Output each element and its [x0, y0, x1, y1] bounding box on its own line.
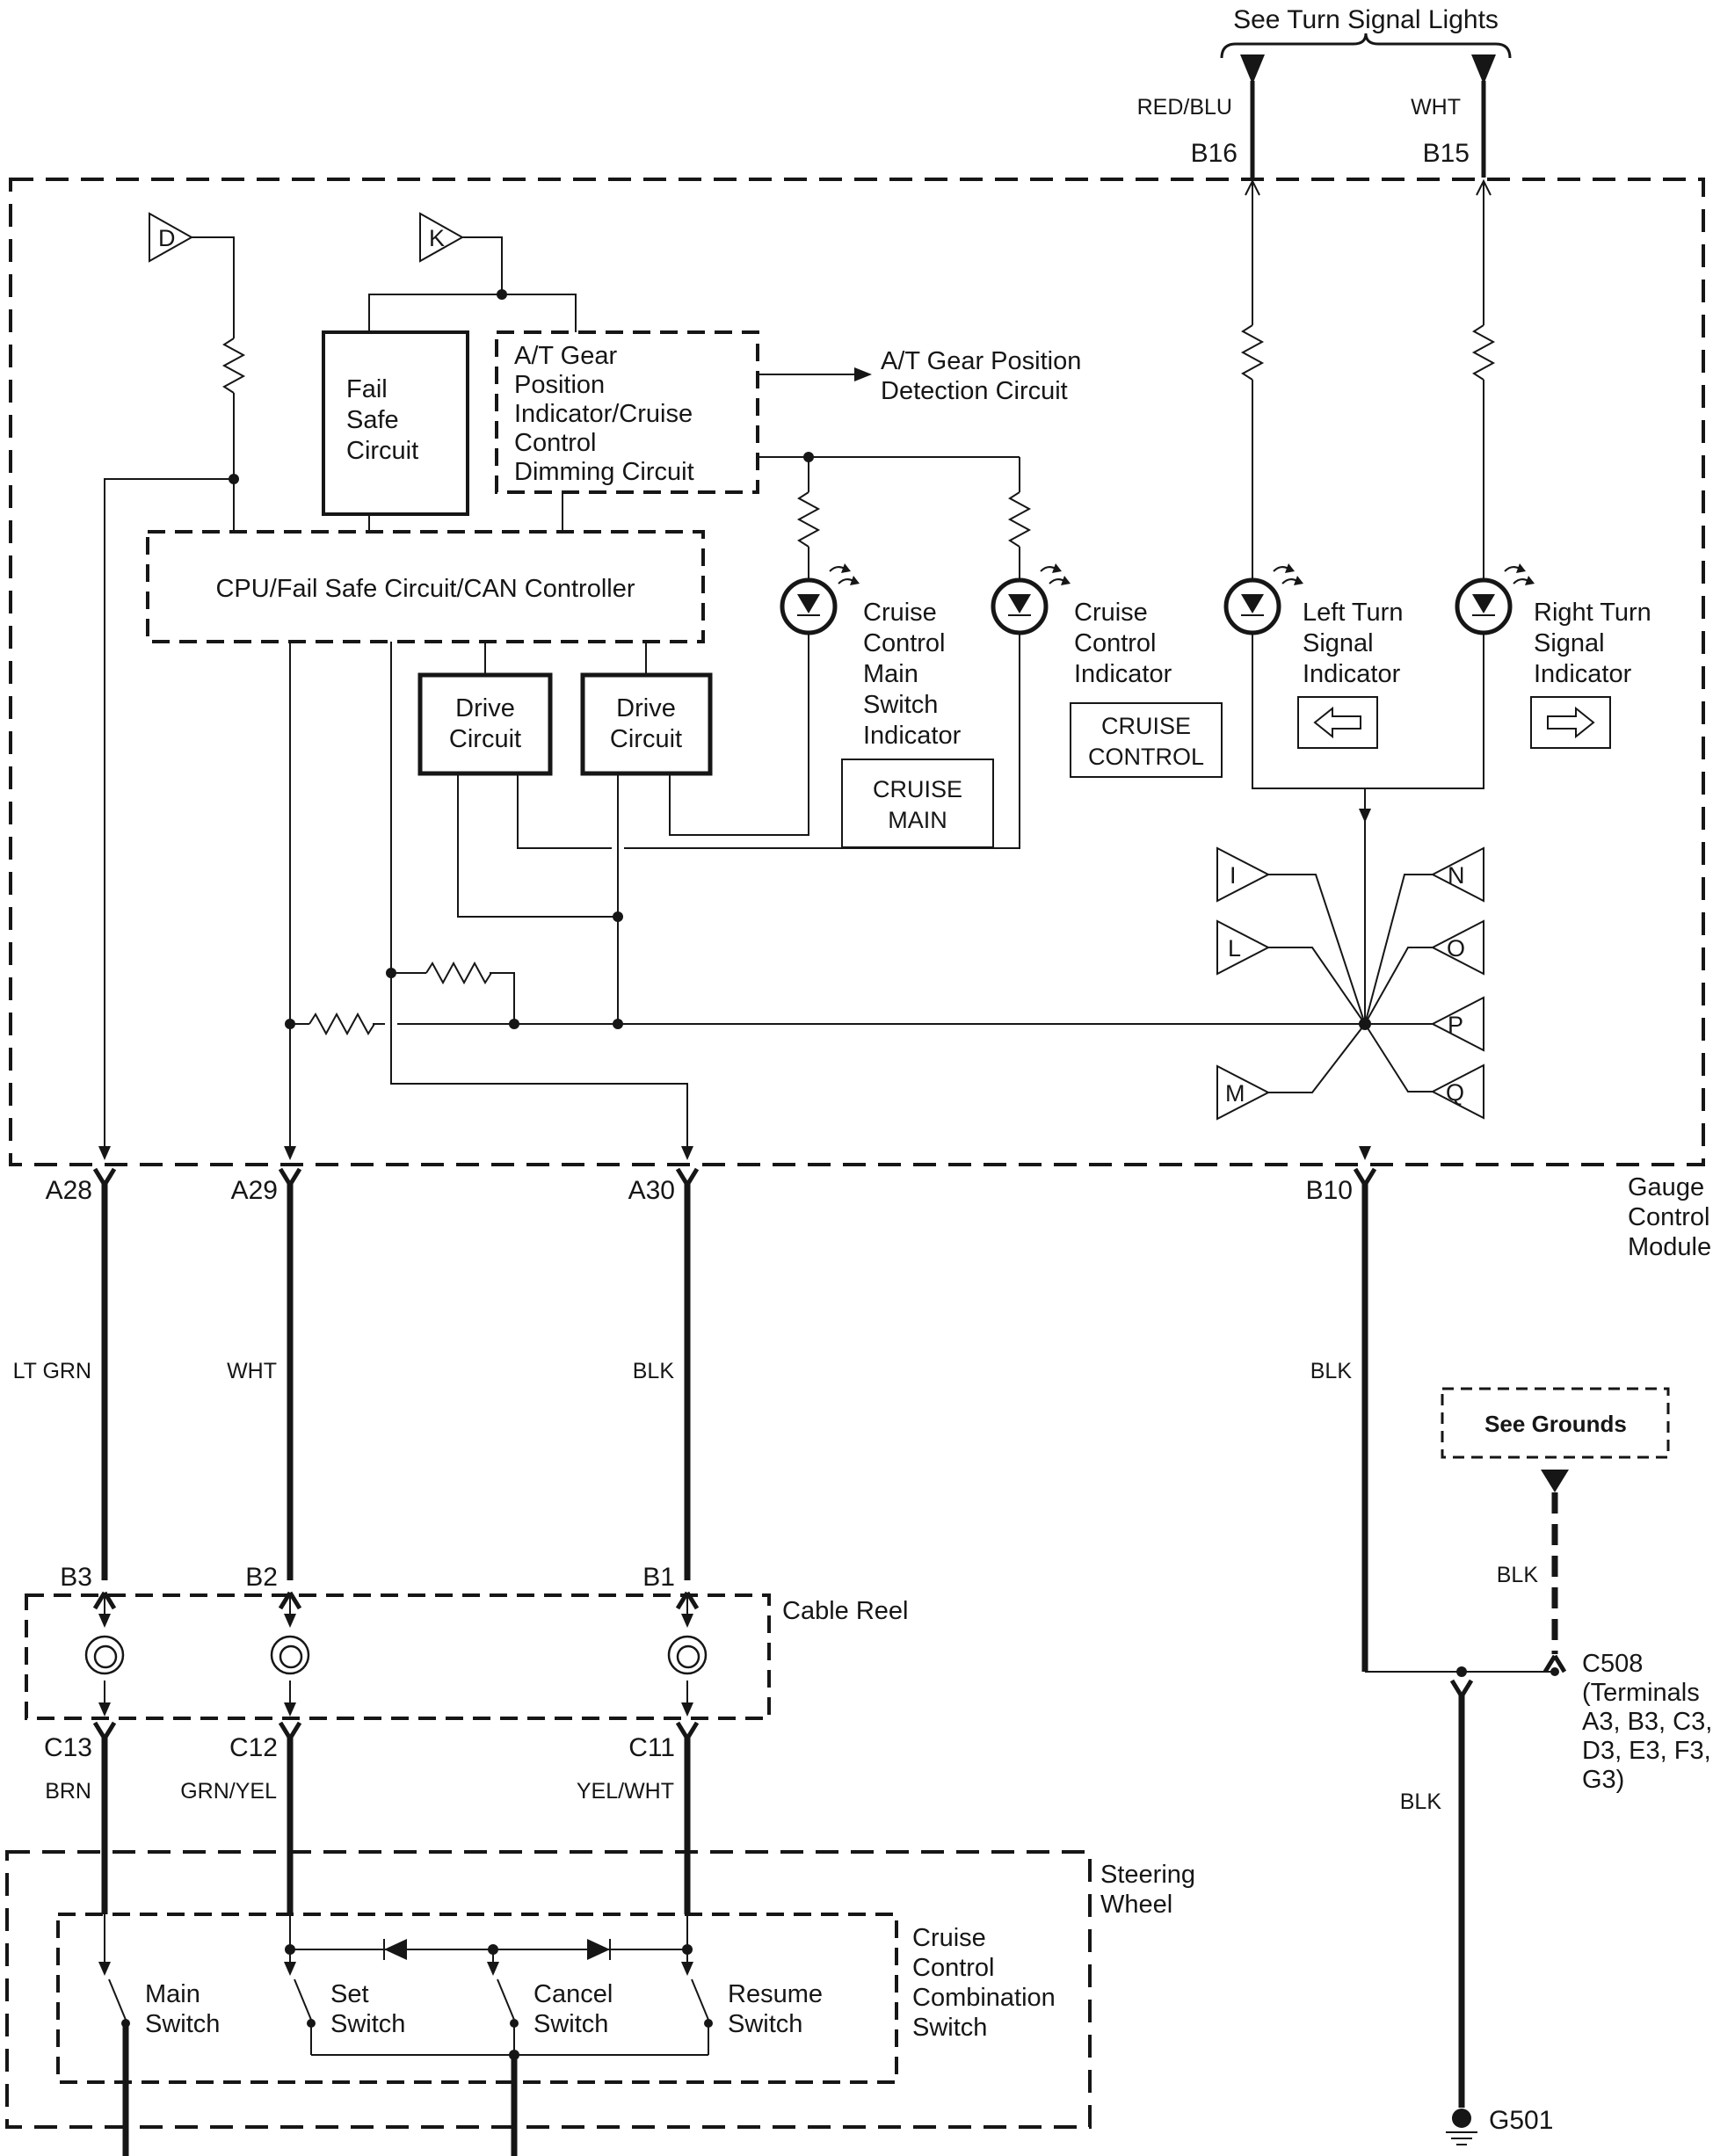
ground-connector-icon	[1541, 1470, 1569, 1492]
cruise-control-indicator: Cruise Control Indicator CRUISE CONTROL	[993, 563, 1222, 777]
combo-line3: Combination	[912, 1984, 1056, 2012]
column-wires: BRN GRN/YEL YEL/WHT	[45, 1735, 687, 1914]
cruise-main-line2: Control	[863, 629, 946, 657]
cable-reel-coil-3	[669, 1595, 706, 1717]
combo-line4: Switch	[912, 2014, 987, 2042]
drive2-line1: Drive	[616, 694, 676, 722]
terminal-B10-label: B10	[1306, 1176, 1353, 1205]
resume-switch-line2: Switch	[728, 2010, 802, 2038]
right-arrow-icon	[1548, 708, 1593, 737]
c12-wire-color: GRN/YEL	[180, 1779, 277, 1804]
cable-reel-label: Cable Reel	[782, 1597, 908, 1625]
turn-return-wires	[1252, 633, 1484, 1024]
left-arrow-badge-box	[1298, 697, 1377, 748]
connector-K: K	[420, 214, 462, 261]
cruise-control-line3: Indicator	[1074, 660, 1172, 688]
left-turn-line1: Left Turn	[1303, 599, 1403, 627]
left-turn-line2: Signal	[1303, 629, 1374, 657]
wiring-diagram-page: See Turn Signal Lights RED/BLU WHT B16 B…	[0, 0, 1713, 2156]
detection-line2: Detection Circuit	[881, 377, 1068, 405]
led-icon	[993, 563, 1071, 633]
b15-wire-color: WHT	[1411, 95, 1461, 120]
a30-wire-color: BLK	[633, 1359, 675, 1383]
a29-wire-color: WHT	[227, 1359, 277, 1383]
b16-wire-color: RED/BLU	[1137, 95, 1232, 120]
c508-line4: D3, E3, F3,	[1582, 1737, 1711, 1765]
connector-I-label: I	[1230, 862, 1237, 889]
cruise-control-badge2: CONTROL	[1088, 744, 1204, 770]
connector-O-label: O	[1447, 935, 1465, 962]
g501-wire-color: BLK	[1400, 1789, 1442, 1814]
junction-dot	[1456, 1666, 1467, 1677]
terminal-B2-label: B2	[245, 1563, 278, 1592]
connector-M-label: M	[1225, 1080, 1245, 1107]
see-grounds-label: See Grounds	[1484, 1411, 1627, 1437]
cancel-switch-line2: Switch	[533, 2010, 608, 2038]
wiring-diagram: See Turn Signal Lights RED/BLU WHT B16 B…	[0, 0, 1713, 2156]
c508-line2: (Terminals	[1582, 1679, 1700, 1707]
at-gear-line2: Position	[514, 371, 605, 399]
led-icon	[782, 563, 860, 633]
c508-line1: C508	[1582, 1650, 1643, 1678]
connector-D: D	[149, 214, 192, 261]
set-switch-line1: Set	[330, 1980, 369, 2008]
connector-Q-label: Q	[1446, 1079, 1464, 1106]
c11-wire-color: YEL/WHT	[577, 1779, 674, 1804]
cable-reel: B3 B2 B1 Cable Reel C13 C12 C11	[26, 1563, 908, 1762]
left-turn-line3: Indicator	[1303, 660, 1401, 688]
turn-signal-feed: See Turn Signal Lights RED/BLU WHT B16 B…	[1137, 5, 1510, 195]
fail-safe-line3: Circuit	[346, 437, 418, 465]
right-turn-line1: Right Turn	[1534, 599, 1651, 627]
diode-right-icon	[587, 1939, 610, 1960]
cable-reel-coil-1	[86, 1595, 123, 1717]
at-gear-line5: Dimming Circuit	[514, 458, 694, 486]
cruise-main-badge2: MAIN	[888, 807, 947, 833]
cruise-control-line2: Control	[1074, 629, 1157, 657]
drive-circuit-2-block: Drive Circuit	[583, 642, 710, 773]
cruise-main-badge-box	[842, 759, 993, 847]
at-gear-line1: A/T Gear	[514, 342, 617, 370]
cruise-control-line1: Cruise	[1074, 599, 1148, 627]
steering-wheel-line1: Steering	[1100, 1861, 1195, 1889]
cruise-main-line5: Indicator	[863, 722, 962, 750]
at-gear-line4: Control	[514, 429, 597, 457]
module-name-line2: Control	[1628, 1203, 1710, 1231]
at-gear-line3: Indicator/Cruise	[514, 400, 693, 428]
b15-terminal-label: B15	[1423, 139, 1470, 168]
drive2-line2: Circuit	[610, 725, 682, 753]
cancel-switch-line1: Cancel	[533, 1980, 613, 2008]
drive1-line2: Circuit	[449, 725, 521, 753]
connector-L: L	[1217, 921, 1365, 1024]
left-arrow-icon	[1315, 708, 1361, 737]
set-switch-line2: Switch	[330, 2010, 405, 2038]
c13-wire-color: BRN	[45, 1779, 91, 1804]
fail-safe-circuit-block: Fail Safe Circuit	[323, 332, 468, 532]
detection-circuit-note: A/T Gear Position Detection Circuit	[758, 347, 1081, 405]
steering-wheel-line2: Wheel	[1100, 1891, 1172, 1919]
connector-P-label: P	[1448, 1012, 1463, 1038]
combo-line2: Control	[912, 1954, 995, 1982]
switch-lever	[294, 1979, 311, 2020]
a28-wire-color: LT GRN	[13, 1359, 91, 1383]
cruise-control-badge1: CRUISE	[1101, 713, 1191, 739]
connector-N-label: N	[1448, 862, 1465, 889]
junction-dot	[1550, 1667, 1559, 1676]
resume-switch-line1: Resume	[728, 1980, 823, 2008]
fail-safe-line2: Safe	[346, 406, 399, 434]
switch-lever	[692, 1979, 708, 2020]
main-switch: Main Switch	[98, 1914, 220, 2156]
connector-Q: Q	[1365, 1024, 1484, 1118]
internal-wires	[285, 633, 1371, 1148]
set-switch: Set Switch	[284, 1914, 405, 2055]
at-gear-dimming-block: A/T Gear Position Indicator/Cruise Contr…	[497, 332, 758, 532]
cruise-main-indicator: Cruise Control Main Switch Indicator CRU…	[782, 563, 993, 847]
terminal-A29-label: A29	[231, 1176, 278, 1205]
connector-P: P	[1365, 998, 1484, 1050]
gauge-control-module-name: Gauge Control Module	[1628, 1173, 1711, 1261]
cable-reel-box	[26, 1595, 769, 1718]
detection-line1: A/T Gear Position	[881, 347, 1081, 375]
right-turn-line2: Signal	[1534, 629, 1605, 657]
brace	[1222, 33, 1510, 58]
terminal-A28-label: A28	[46, 1176, 92, 1205]
fail-safe-line1: Fail	[346, 375, 388, 403]
terminal-B3-label: B3	[60, 1563, 92, 1592]
cpu-label: CPU/Fail Safe Circuit/CAN Controller	[215, 575, 635, 603]
right-arrow-badge-box	[1531, 697, 1610, 748]
ground-wire-color: BLK	[1497, 1563, 1539, 1587]
right-turn-line3: Indicator	[1534, 660, 1632, 688]
d-wire	[105, 237, 243, 1148]
ground-symbol-icon	[1446, 2109, 1477, 2145]
cpu-block: CPU/Fail Safe Circuit/CAN Controller	[148, 532, 703, 642]
terminal-A30-label: A30	[628, 1176, 675, 1205]
cruise-main-line1: Cruise	[863, 599, 937, 627]
drive-circuit-1-block: Drive Circuit	[420, 642, 550, 773]
connector-K-label: K	[429, 225, 445, 251]
led-icon	[1457, 563, 1535, 633]
connector-N: N	[1365, 848, 1484, 1024]
connector-O: O	[1365, 921, 1484, 1024]
combo-line1: Cruise	[912, 1924, 986, 1952]
terminal-C12-label: C12	[229, 1733, 278, 1762]
led-icon	[1226, 563, 1303, 633]
g501-label: G501	[1489, 2106, 1553, 2135]
b15-connector-icon	[1471, 54, 1496, 84]
terminal-C13-label: C13	[44, 1733, 92, 1762]
right-turn-indicator: Right Turn Signal Indicator	[1457, 181, 1651, 748]
b16-connector-icon	[1240, 54, 1265, 84]
module-name-line3: Module	[1628, 1233, 1711, 1261]
drive1-left-wire	[458, 773, 618, 917]
switch-lever	[497, 1979, 514, 2020]
k-wire	[369, 237, 576, 332]
connector-L-label: L	[1228, 935, 1241, 962]
cancel-switch: Cancel Switch	[487, 1962, 613, 2055]
drive1-line1: Drive	[455, 694, 515, 722]
diode-left-icon	[384, 1939, 407, 1960]
terminal-C11-label: C11	[628, 1733, 675, 1762]
switch-lever	[109, 1979, 126, 2020]
switch-common-bus	[311, 2050, 708, 2156]
main-switch-line1: Main	[145, 1980, 200, 2008]
led-feed-wires	[758, 452, 1029, 580]
cruise-main-badge1: CRUISE	[873, 776, 962, 802]
connector-M: M	[1217, 1024, 1365, 1119]
c508-line3: A3, B3, C3,	[1582, 1708, 1712, 1736]
c508-line5: G3)	[1582, 1766, 1624, 1794]
cable-reel-coil-2	[272, 1595, 308, 1717]
resistor-branch-wire	[490, 973, 514, 1024]
cruise-main-line4: Switch	[863, 691, 938, 719]
connector-D-label: D	[158, 225, 176, 251]
see-turn-signal-lights-label: See Turn Signal Lights	[1233, 5, 1499, 34]
module-name-line1: Gauge	[1628, 1173, 1704, 1201]
grounds-branch: See Grounds BLK C508 (Terminals A3, B3, …	[1365, 1389, 1712, 2145]
main-switch-line2: Switch	[145, 2010, 220, 2038]
cruise-main-led-return	[670, 633, 809, 835]
b16-terminal-label: B16	[1191, 139, 1238, 168]
terminal-B1-label: B1	[642, 1563, 675, 1592]
cruise-main-line3: Main	[863, 660, 918, 688]
resume-switch: Resume Switch	[681, 1914, 823, 2055]
b10-wire-color: BLK	[1310, 1359, 1353, 1383]
arrow-right-icon	[854, 367, 872, 381]
